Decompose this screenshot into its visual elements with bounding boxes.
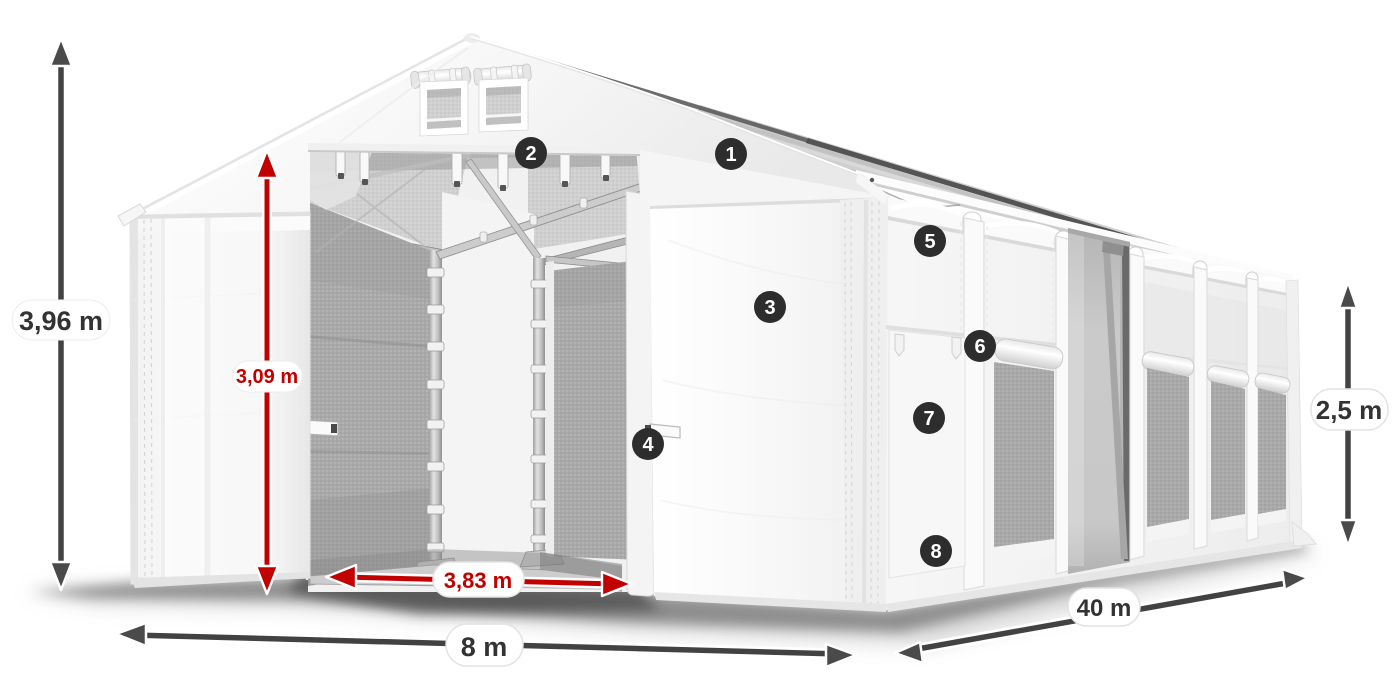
svg-text:2,5 m: 2,5 m: [1316, 395, 1383, 425]
svg-text:3,96 m: 3,96 m: [19, 306, 103, 336]
svg-text:4: 4: [642, 434, 654, 456]
svg-text:5: 5: [924, 231, 935, 253]
svg-text:8 m: 8 m: [461, 632, 508, 662]
svg-text:3,83 m: 3,83 m: [444, 568, 513, 593]
svg-text:8: 8: [930, 541, 941, 563]
svg-text:6: 6: [974, 336, 985, 358]
svg-text:3: 3: [764, 297, 775, 319]
svg-text:7: 7: [923, 408, 934, 430]
svg-text:3,09 m: 3,09 m: [236, 366, 298, 388]
svg-text:1: 1: [725, 144, 736, 166]
svg-text:2: 2: [525, 143, 536, 165]
svg-text:40 m: 40 m: [1077, 595, 1132, 622]
